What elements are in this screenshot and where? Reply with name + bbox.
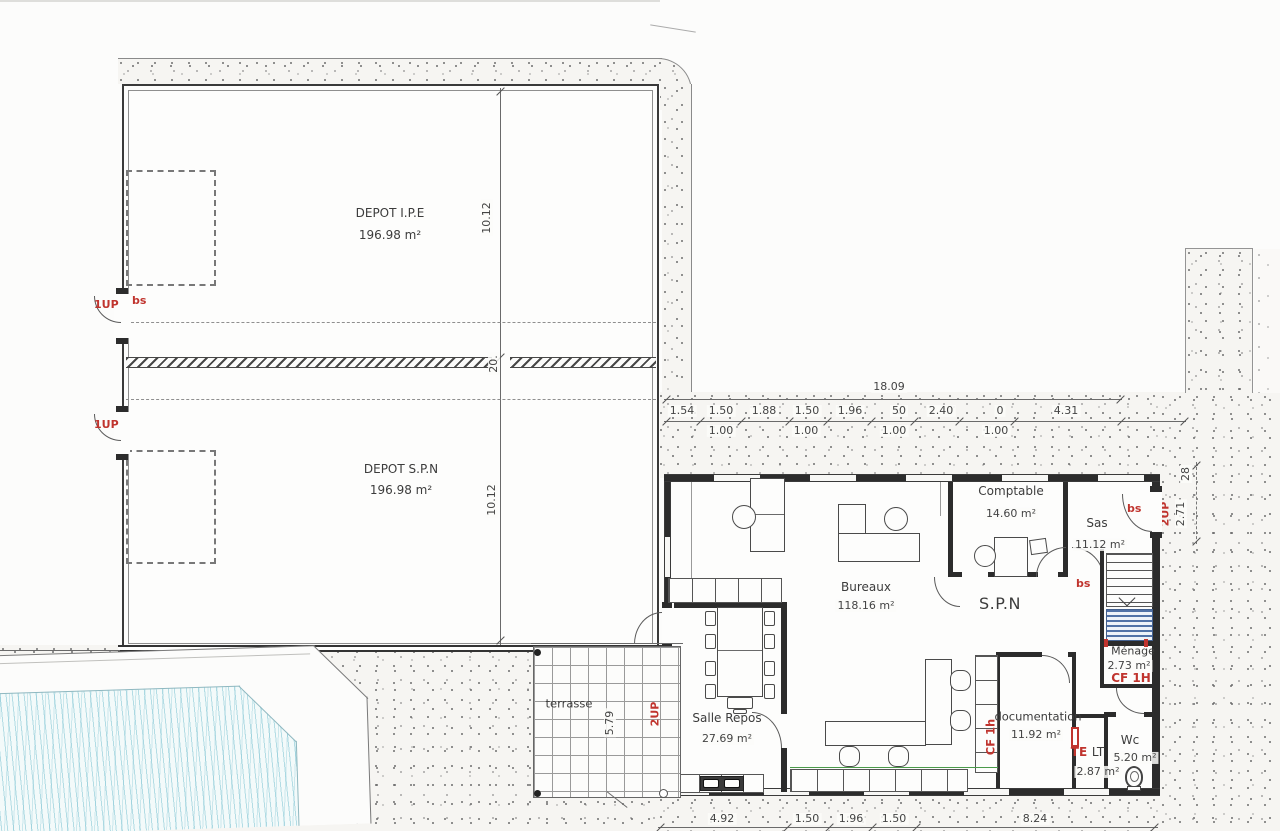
dashed-zone-upper (126, 170, 216, 286)
sallerepos-east-wall-seg (781, 602, 787, 714)
annotation-bs-a: bs (132, 295, 146, 308)
annotation-cf1h-doc: CF 1h (984, 719, 997, 756)
dim-bottom-4: 8.24 (1021, 813, 1050, 825)
desk (925, 659, 952, 745)
chair (974, 545, 996, 567)
dim-chain-4: 1.96 (836, 405, 865, 417)
dim-sub-2: 1.00 (880, 425, 909, 437)
dim-chain-6: 2.40 (927, 405, 956, 417)
dim-right-offset: 28 (1180, 465, 1192, 483)
partition-line (691, 482, 692, 582)
toilet-tank (1127, 786, 1141, 791)
chair (888, 746, 909, 767)
dim-bottom-0: 4.92 (708, 813, 737, 825)
annotation-2up-terrasse: 2UP (650, 702, 663, 727)
monitor (1029, 538, 1048, 555)
floor-plan: DEPOT I.P.E 196.98 m² DEPOT S.P.N 196.98… (0, 0, 1280, 831)
green-reference-line (790, 767, 998, 768)
room-label-sas: Sas (1086, 517, 1107, 531)
stair-west-wall (1100, 549, 1104, 687)
dim-chain-5: 50 (890, 405, 908, 417)
annotation-1up-a: 1UP (94, 299, 119, 312)
dim-overall: 18.09 (871, 381, 907, 393)
chair (764, 661, 775, 676)
room-label-documentation: documentation (994, 710, 1081, 723)
chair (764, 611, 775, 626)
chair (732, 505, 756, 529)
dim-chain-0: 1.54 (668, 405, 697, 417)
terrace-edge-line (531, 643, 683, 644)
dim-line-bottom (658, 827, 1158, 828)
dim-sub-3: 1.00 (982, 425, 1011, 437)
east-ground-texture (1160, 393, 1280, 831)
crane-dashed-line-lower (126, 399, 656, 400)
room-label-bureaux: Bureaux (841, 581, 891, 595)
partition-line (940, 482, 941, 516)
door-jamb (116, 406, 128, 412)
scan-line-artifact (650, 24, 696, 32)
toilet-bowl (1130, 771, 1139, 782)
chair (727, 697, 753, 709)
room-label-depot-ipe: DEPOT I.P.E (356, 207, 425, 221)
scan-edge-artifact (0, 0, 660, 2)
east-wall-band-texture (1185, 248, 1253, 393)
pool-water (0, 684, 299, 831)
sallerepos-east-wall-seg (781, 748, 787, 792)
terrace-post (534, 790, 541, 797)
cabinet-row (668, 578, 782, 603)
depot-north-wall-texture (118, 58, 662, 84)
door-jamb (116, 288, 128, 294)
chair (950, 670, 971, 691)
meeting-table-divider (718, 650, 762, 651)
room-label-comptable: Comptable (978, 485, 1043, 499)
room-label-spn: S.P.N (979, 595, 1021, 613)
door-opening (662, 608, 673, 644)
dim-sub-0: 1.00 (707, 425, 736, 437)
annotation-cf1h-menage: CF 1H (1111, 672, 1151, 686)
dim-chain-2: 1.88 (750, 405, 779, 417)
meeting-table (717, 607, 763, 697)
dim-chain-3: 1.50 (793, 405, 822, 417)
room-area-comptable: 14.60 m² (984, 508, 1038, 520)
chair (884, 507, 908, 531)
dim-depot-upper-height: 10.12 (481, 200, 493, 236)
chair (950, 710, 971, 731)
dim-line-overall (664, 399, 1122, 400)
wc-north-wall-seg (1104, 712, 1116, 717)
documentation-north-wall-seg (996, 652, 1042, 657)
depot-divider-wall-left (126, 357, 492, 368)
room-label-sallerepos: Salle Repos (692, 712, 761, 726)
stair-lower-flight-hatch (1106, 609, 1153, 641)
comptable-west-wall (948, 482, 953, 577)
electrical-panel (1071, 727, 1079, 747)
chair (705, 634, 716, 649)
room-area-lt: 2.87 m² (1074, 766, 1121, 778)
dim-divider-wall: 20. (488, 353, 500, 375)
annotation-bs-stairs: bs (1076, 578, 1090, 591)
annotation-1up-b: 1UP (94, 419, 119, 432)
cabinet-row-south (790, 769, 968, 792)
annotation-bs-sas: bs (1127, 503, 1141, 516)
dim-bottom-2: 1.96 (837, 813, 866, 825)
room-label-menage: Ménage (1111, 646, 1155, 659)
door-jamb (1150, 486, 1162, 492)
door-jamb (116, 338, 128, 344)
fire-door-mark (1104, 639, 1108, 647)
room-label-depot-spn: DEPOT S.P.N (364, 463, 438, 477)
door-jamb (116, 454, 128, 460)
terrace-post (534, 649, 541, 656)
room-area-documentation: 11.92 m² (1009, 729, 1063, 741)
annotation-te: TE (1071, 746, 1087, 760)
dim-terrasse-depth: 5.79 (604, 709, 616, 738)
dim-chain-1: 1.50 (707, 405, 736, 417)
terrace-post-ring (659, 789, 668, 798)
dim-line-right-dashed (1196, 462, 1197, 544)
dashed-zone-lower (126, 450, 216, 564)
sink-bowl (703, 779, 719, 788)
room-area-depot-ipe: 196.98 m² (359, 229, 421, 243)
office-north-wall (664, 474, 1160, 482)
east-sparse-texture (1254, 249, 1280, 393)
room-area-sallerepos: 27.69 m² (700, 733, 754, 745)
room-area-depot-spn: 196.98 m² (370, 484, 432, 498)
room-label-wc: Wc (1121, 734, 1139, 748)
dim-chain-8: 4.31 (1052, 405, 1081, 417)
wc-north-wall-seg (1144, 712, 1154, 717)
room-area-sas: 11.12 m² (1073, 539, 1127, 551)
room-area-wc: 5.20 m² (1111, 752, 1158, 764)
ground-line-west (0, 650, 120, 651)
chair (705, 684, 716, 699)
door-jamb (1150, 532, 1162, 538)
depot-dimension-line (500, 88, 501, 645)
depot-divider-wall-right (510, 357, 656, 368)
swimming-pool (0, 643, 401, 831)
room-area-bureaux: 118.16 m² (835, 600, 896, 612)
room-label-lt: LT (1092, 746, 1104, 760)
desk (994, 537, 1028, 577)
room-label-terrasse: terrasse (546, 697, 593, 710)
dim-sub-1: 1.00 (792, 425, 821, 437)
crane-dashed-line-upper (126, 322, 656, 323)
chair (839, 746, 860, 767)
dim-bottom-1: 1.50 (793, 813, 822, 825)
dim-chain-7: 0 (995, 405, 1006, 417)
chair (764, 684, 775, 699)
dim-right-height: 2.71 (1175, 500, 1187, 529)
chair (764, 634, 775, 649)
desk (838, 533, 920, 562)
chair (705, 611, 716, 626)
desk (825, 721, 926, 746)
sink-bowl (724, 779, 740, 788)
dim-bottom-3: 1.50 (880, 813, 909, 825)
depot-east-wall-texture (662, 84, 692, 396)
dim-depot-lower-height: 10.12 (486, 482, 498, 518)
chair (705, 661, 716, 676)
